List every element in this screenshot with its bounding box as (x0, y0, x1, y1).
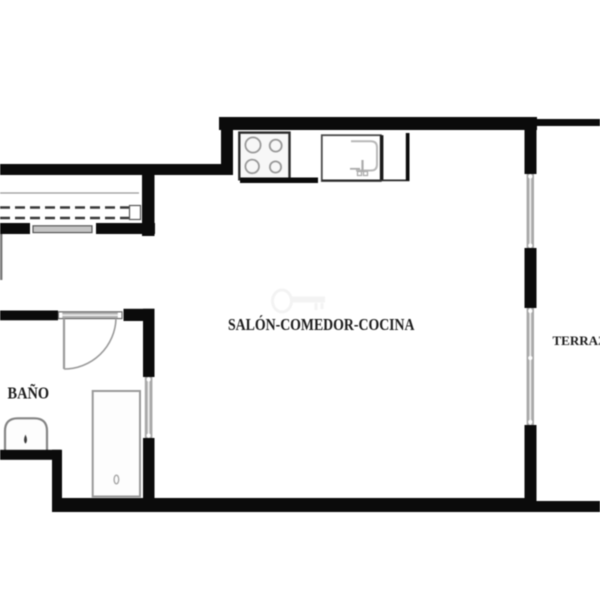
svg-text:SALÓN-COMEDOR-COCINA: SALÓN-COMEDOR-COCINA (228, 315, 415, 334)
svg-text:BAÑO: BAÑO (8, 384, 50, 403)
svg-text:TERRAZA: TERRAZA (553, 333, 600, 348)
